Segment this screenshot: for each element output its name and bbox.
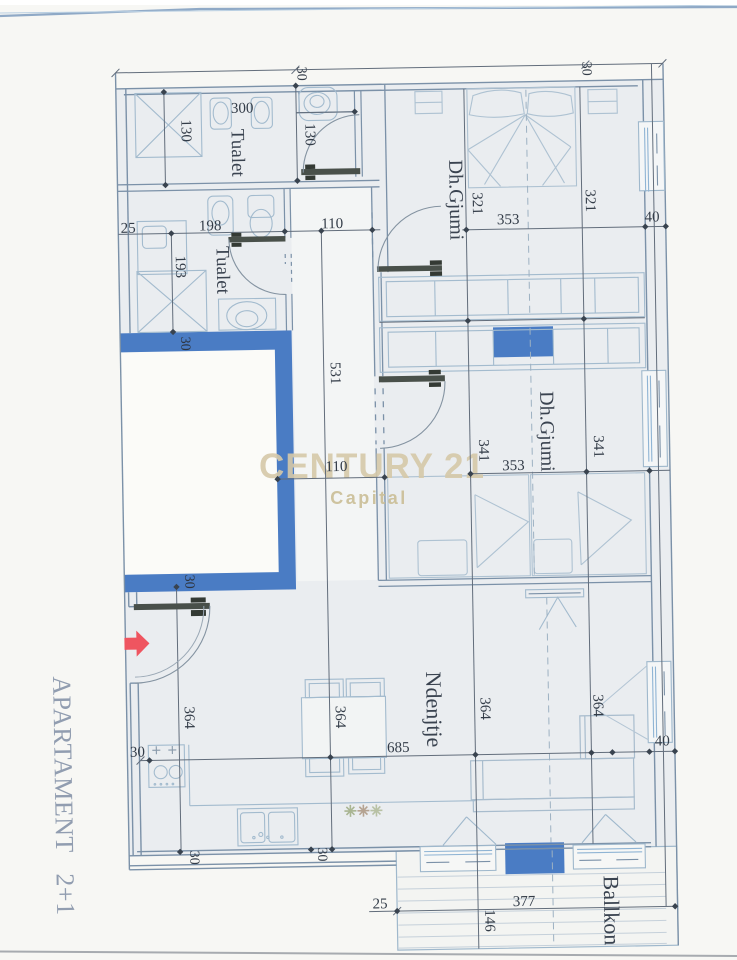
svg-text:Dh.Gjumi: Dh.Gjumi	[535, 391, 558, 472]
svg-text:30: 30	[130, 744, 145, 760]
svg-text:130: 130	[301, 123, 317, 146]
svg-text:321: 321	[582, 189, 598, 212]
svg-text:364: 364	[332, 706, 348, 729]
svg-text:321: 321	[469, 192, 485, 215]
svg-text:APARTAMENT 2+1: APARTAMENT 2+1	[47, 676, 80, 916]
svg-text:353: 353	[497, 212, 520, 228]
svg-text:364: 364	[181, 706, 197, 729]
svg-text:Tualet: Tualet	[226, 129, 248, 178]
svg-text:25: 25	[372, 896, 387, 912]
svg-text:Ndenjtje: Ndenjtje	[421, 671, 447, 747]
svg-text:146: 146	[481, 909, 497, 932]
svg-text:193: 193	[172, 255, 188, 278]
svg-text:341: 341	[590, 435, 606, 458]
svg-text:364: 364	[476, 697, 492, 720]
svg-text:531: 531	[327, 362, 343, 385]
svg-text:30: 30	[177, 337, 192, 351]
svg-text:130: 130	[177, 119, 193, 142]
svg-text:198: 198	[199, 218, 222, 234]
svg-text:353: 353	[502, 458, 525, 474]
svg-text:CENTURY 21: CENTURY 21	[259, 447, 485, 486]
svg-text:25: 25	[121, 221, 136, 237]
svg-text:30: 30	[181, 575, 196, 589]
svg-text:Ballkon: Ballkon	[599, 875, 625, 945]
svg-text:110: 110	[321, 216, 343, 232]
svg-text:Capital: Capital	[330, 488, 408, 508]
svg-text:Tualet: Tualet	[212, 246, 234, 295]
svg-text:30: 30	[578, 62, 593, 76]
svg-text:40: 40	[655, 733, 670, 749]
svg-text:Dh.Gjumi: Dh.Gjumi	[444, 160, 467, 241]
svg-text:300: 300	[231, 101, 254, 117]
svg-text:30: 30	[186, 851, 201, 865]
svg-text:30: 30	[314, 847, 329, 861]
svg-text:364: 364	[589, 694, 605, 717]
svg-text:40: 40	[644, 209, 659, 225]
svg-text:377: 377	[513, 894, 536, 910]
svg-text:30: 30	[293, 67, 308, 81]
svg-text:110: 110	[325, 459, 347, 475]
svg-text:341: 341	[475, 439, 491, 462]
svg-text:685: 685	[387, 740, 410, 756]
